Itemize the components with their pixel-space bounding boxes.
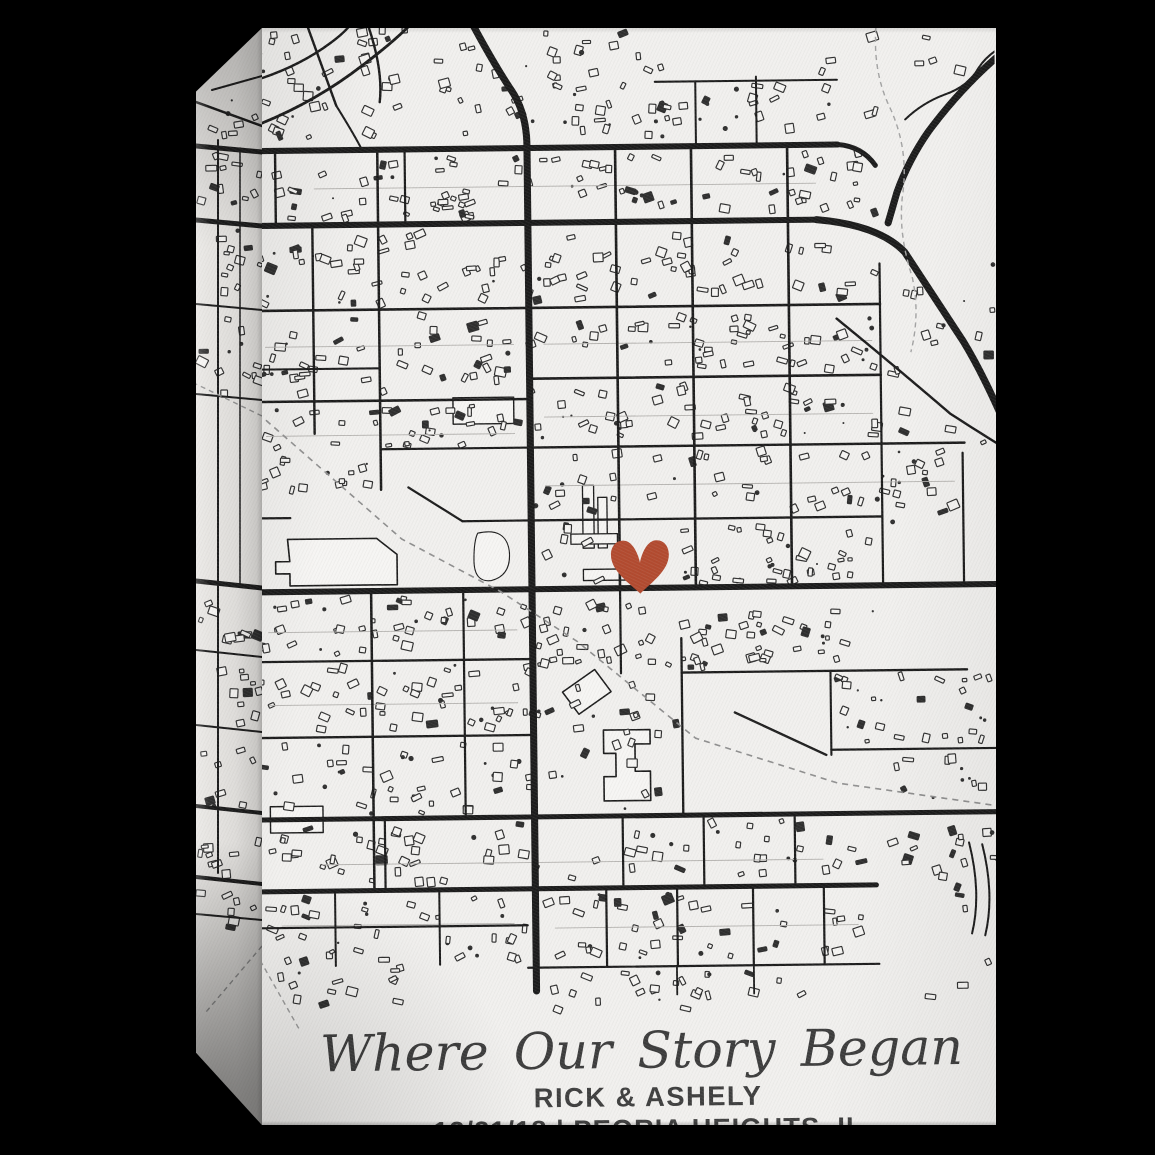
side-map-layers xyxy=(196,76,262,1012)
street-map-art: Where Our Story Began RICK & ASHELY 12/2… xyxy=(262,28,996,1125)
canvas-print-mockup: Where Our Story Began RICK & ASHELY 12/2… xyxy=(0,0,1155,1155)
map-layers xyxy=(262,28,996,1030)
canvas-front-face: Where Our Story Began RICK & ASHELY 12/2… xyxy=(262,28,996,1125)
title-script: Where Our Story Began xyxy=(320,1017,964,1083)
product-photo-background: { "product": { "background_color": "#000… xyxy=(0,0,1155,1155)
buildings-group xyxy=(262,28,996,1018)
date-location-line: 12/21/18 | PEORIA HEIGHTS, IL xyxy=(433,1111,864,1125)
large-buildings-group xyxy=(266,396,651,833)
names-line: RICK & ASHELY xyxy=(534,1080,763,1114)
canvas-side-map-wrap xyxy=(196,28,262,1125)
canvas-side-edge xyxy=(196,28,262,1125)
